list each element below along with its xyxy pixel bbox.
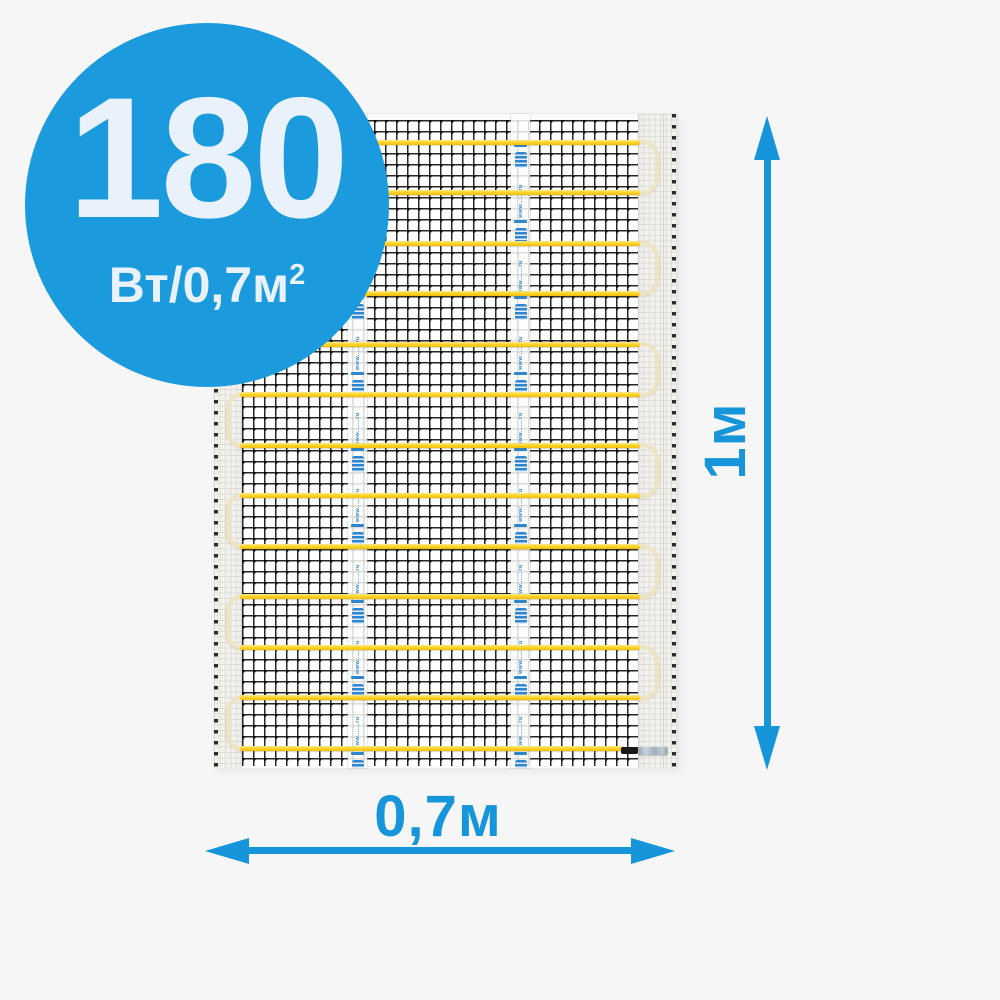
cable-end-sleeve [621,747,638,754]
tape-logo-icon [515,152,527,168]
tape-url-text: www.......ru [354,324,362,370]
tape-dash [351,676,364,679]
width-arrow-left-icon [205,838,249,864]
tape-url-text: www.......ru [517,552,525,598]
cable-loop-left [226,392,244,448]
cable-end-connector [638,746,668,755]
power-unit-superscript: 2 [289,259,305,291]
tape-strip: www.......ruwww.......ruwww.......ruwww.… [511,114,530,768]
tape-logo-icon [515,304,527,320]
width-arrow-right-icon [631,838,675,864]
cable-loop-right [635,342,659,398]
tape-url-text: www.......ru [517,248,525,294]
tape-dash [351,600,364,603]
power-value: 180 [68,72,346,244]
mesh-edge-right [672,114,676,768]
tape-url-text: www.......ru [517,704,525,750]
tape-dash [351,524,364,527]
cable-loop-left [226,695,244,751]
cable-loop-right [635,544,659,600]
cable-loop-left [226,493,244,549]
tape-url-text: www.......ru [354,628,362,674]
cable-loop-left [226,594,244,650]
tape-url-text: www.......ru [517,476,525,522]
tape-dash [514,600,527,603]
tape-logo-icon [515,456,527,472]
tape-dash [514,524,527,527]
tape-url-text: www.......ru [354,476,362,522]
tape-url-text: www.......ru [517,172,525,218]
tape-dash [514,296,527,299]
heating-cable [240,594,640,599]
tape-url-text: www.......ru [354,400,362,446]
mat-edge-rail [663,114,664,768]
tape-dash [514,752,527,755]
height-arrow-up-icon [754,116,780,160]
tape-url-text: www.......ru [354,552,362,598]
heating-cable [240,392,640,397]
height-arrow-down-icon [754,726,780,770]
heating-cable [240,746,623,751]
tape-dash [351,372,364,375]
tape-logo-icon [352,760,364,768]
tape-dash [351,752,364,755]
cable-loop-right [635,443,659,499]
heating-cable [240,645,640,650]
tape-dash [514,220,527,223]
tape-dash [351,448,364,451]
tape-logo-icon [515,760,527,768]
power-unit: Вт/0,7м2 [109,260,305,310]
tape-url-text: www.......ru [517,400,525,446]
height-dimension-line [764,150,771,738]
tape-logo-icon [515,608,527,624]
tape-url-text: www.......ru [517,324,525,370]
heating-cable [240,544,640,549]
heating-cable [240,443,640,448]
cable-loop-right [635,140,659,196]
tape-logo-icon [352,456,364,472]
tape-url-text: www.......ru [517,628,525,674]
heating-cable [240,493,640,498]
tape-logo-icon [352,608,364,624]
tape-dash [514,448,527,451]
heating-cable [240,695,640,700]
tape-dash [514,676,527,679]
height-label: 1м [697,369,755,513]
tape-url-text: www.......ru [354,704,362,750]
cable-loop-right [635,645,659,701]
product-image: www.......ruwww.......ruwww.......ruwww.… [0,0,1000,1000]
cable-loop-right [635,241,659,297]
width-label: 0,7м [318,788,558,846]
tape-dash [514,372,527,375]
power-badge: 180 Вт/0,7м2 [25,23,389,387]
